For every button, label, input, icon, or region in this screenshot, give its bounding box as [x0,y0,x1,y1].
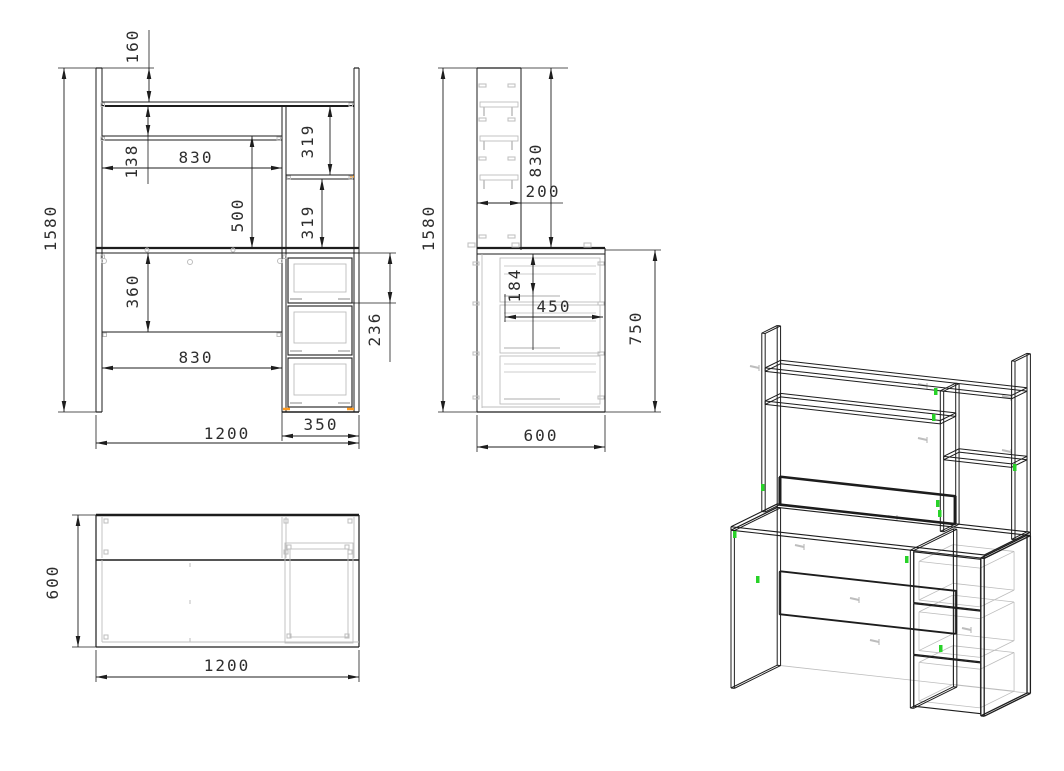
drawing-page: 160 1580 138 830 500 319 319 360 830 120… [0,0,1064,771]
dim-side-total-depth: 600 [524,426,559,445]
dim-side-desk-height: 750 [626,311,645,346]
dim-side-total-height: 1580 [419,205,438,252]
dim-side-hutch-height: 830 [526,143,545,178]
dim-front-shelf-upper: 319 [298,124,317,159]
dim-front-top-offset: 160 [123,29,142,64]
dim-front-shelf-lower: 319 [298,205,317,240]
dim-front-under-desktop: 360 [123,274,142,309]
dim-top-width: 1200 [204,656,251,675]
dim-side-hutch-depth: 200 [526,182,561,201]
dim-front-total-height: 1580 [41,205,60,252]
dim-side-drawer-offset: 184 [505,268,524,303]
dim-front-shelf-gap: 138 [122,144,141,179]
dim-front-drawer-front: 236 [365,312,384,347]
drawing-geometry [58,30,1030,716]
dim-side-drawer-depth: 450 [537,297,572,316]
dim-front-niche-height: 500 [228,198,247,233]
technical-drawing-canvas: 160 1580 138 830 500 319 319 360 830 120… [0,0,1064,771]
dim-front-inner-width: 830 [179,148,214,167]
dim-front-pedestal-width: 350 [304,415,339,434]
dim-front-total-width: 1200 [204,424,251,443]
dim-top-depth: 600 [43,565,62,600]
dim-front-inner-width-lower: 830 [179,348,214,367]
